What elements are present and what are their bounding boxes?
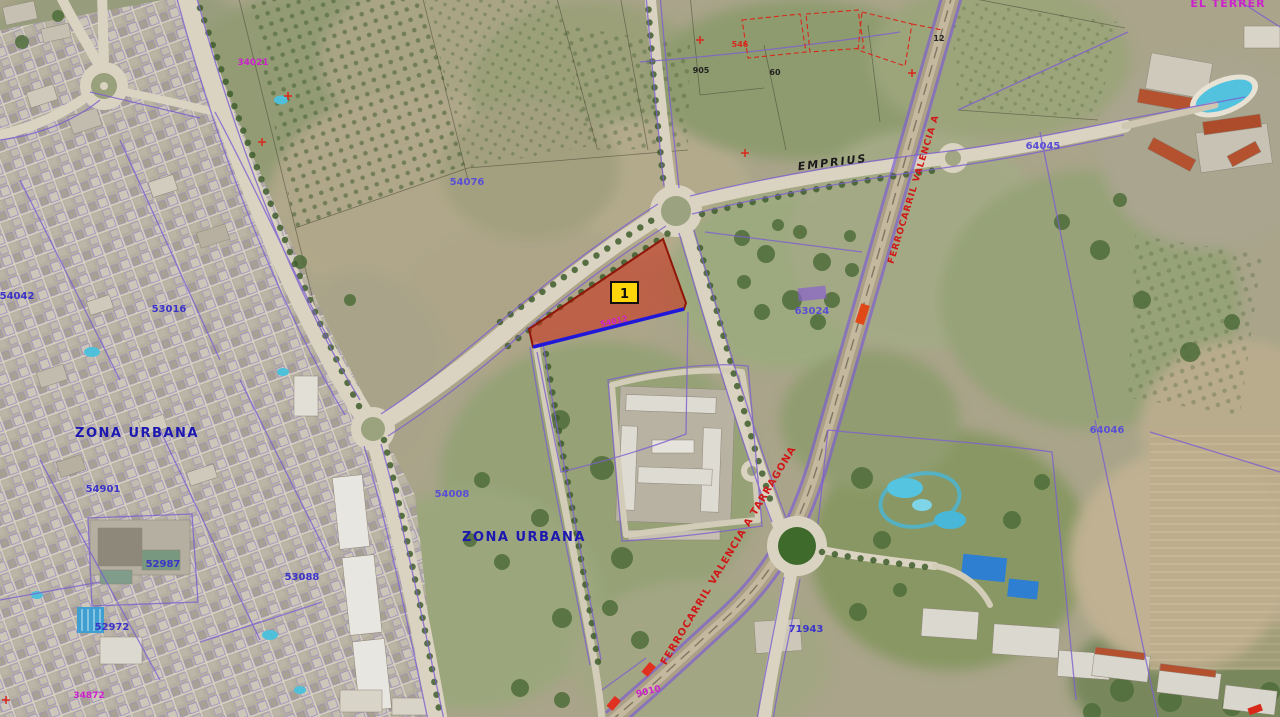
parcel-number-12: 12: [933, 34, 944, 43]
parcel-number-54901: 54901: [86, 484, 121, 495]
parcel-number-34872: 34872: [73, 691, 104, 701]
parcel-number-34021: 34021: [237, 58, 268, 68]
zona-urbana-left-label: ZONA URBANA: [75, 426, 199, 441]
parcel-number-71943: 71943: [789, 624, 824, 635]
parcel-number-64045: 64045: [1026, 141, 1061, 152]
zona-urbana-center-label: ZONA URBANA: [462, 530, 586, 545]
parcel-number-54008: 54008: [435, 489, 470, 500]
map-canvas[interactable]: 1 54012 ZONA URBANA ZONA URBANA EMPRIUS …: [0, 0, 1280, 717]
parcel-number-64046: 64046: [1090, 425, 1125, 436]
parcel-number-53088: 53088: [285, 572, 320, 583]
highlight-parcel-marker: 1: [611, 282, 638, 303]
parcel-number-54042: 54042: [0, 291, 34, 302]
parcel-number-63024: 63024: [795, 306, 830, 317]
parcel-number-53016: 53016: [152, 304, 187, 315]
area-label-top-right: EL TERRER: [1190, 0, 1265, 10]
parcel-number-52987: 52987: [146, 559, 181, 570]
parcel-number-60: 60: [769, 68, 781, 77]
map-viewport[interactable]: 1 54012 ZONA URBANA ZONA URBANA EMPRIUS …: [0, 0, 1280, 717]
parcel-number-52972: 52972: [95, 622, 130, 633]
parcel-number-54076: 54076: [450, 177, 485, 188]
parcel-number-546: 546: [732, 40, 749, 49]
parcel-marker-number: 1: [620, 287, 629, 302]
parcel-number-905: 905: [693, 66, 710, 75]
